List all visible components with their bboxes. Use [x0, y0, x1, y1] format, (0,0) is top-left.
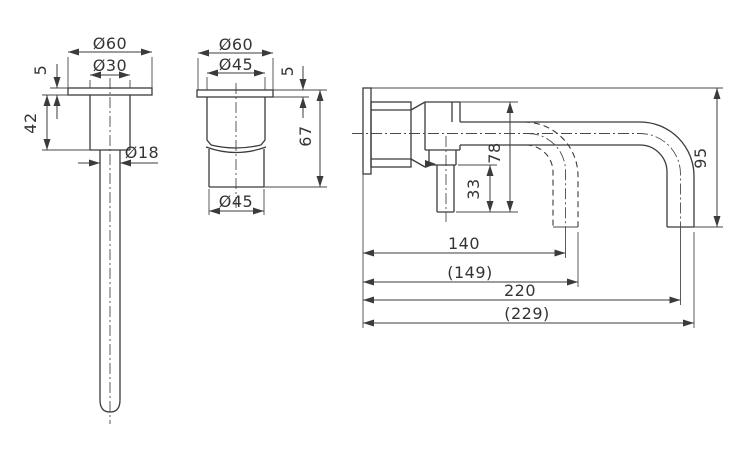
dim-label-tube-diameter: Ø18 — [125, 143, 159, 162]
dim-label-flange-thickness: 5 — [31, 65, 50, 76]
body-joint-mark — [425, 160, 436, 168]
valve-body-outline — [437, 165, 454, 212]
mount-flange-outline — [371, 102, 411, 167]
spout-short-centerline — [528, 134, 566, 233]
dim-label-body-diameter: Ø45 — [219, 55, 253, 74]
handle-lower-body-outline — [209, 149, 264, 187]
dim-label-outlet-height: 95 — [691, 147, 710, 168]
faucet-body-outline — [425, 102, 460, 150]
dim-label-spout-drop: 78 — [485, 142, 504, 163]
dim-label-bottom-diameter: Ø45 — [219, 192, 253, 211]
dim-label-flange-thickness: 5 — [278, 66, 297, 77]
dim-label-flange-diameter: Ø60 — [93, 34, 127, 53]
dim-label-reach-center-short: 140 — [448, 234, 480, 253]
ext-line — [363, 102, 723, 328]
dim-label-reach-center-long: 220 — [504, 281, 536, 300]
spout-short-outer-hidden — [524, 122, 578, 227]
dim-label-body-diameter: Ø30 — [93, 56, 127, 75]
spout-front-view: Ø60 Ø30 5 42 Ø18 — [21, 34, 159, 424]
handle-front-view: Ø60 Ø45 5 67 Ø45 — [197, 35, 327, 215]
ext-line — [42, 88, 90, 150]
dim-label-total-height: 67 — [296, 125, 315, 146]
dim-label-reach-overall-long: (229) — [504, 304, 550, 323]
dim-label-body-height: 42 — [21, 112, 40, 133]
dim-label-flange-diameter: Ø60 — [219, 35, 253, 54]
spout-short-inner-hidden — [526, 145, 553, 227]
mount-flange-steps — [371, 102, 425, 167]
technical-drawing-page: Ø60 Ø30 5 42 Ø18 Ø60 Ø45 5 67 — [0, 0, 743, 472]
spout-long-centerline — [352, 134, 681, 233]
dim-label-reach-overall-short: (149) — [447, 263, 493, 282]
drawing-svg: Ø60 Ø30 5 42 Ø18 Ø60 Ø45 5 67 — [0, 0, 743, 472]
handle-flange-outline — [197, 90, 273, 97]
dim-label-valve-height: 33 — [464, 178, 483, 199]
valve-shoulder-outline — [429, 150, 456, 165]
wall-plate-outline — [363, 88, 371, 174]
side-view: 78 33 95 140 (149) 220 (229) — [352, 88, 723, 328]
